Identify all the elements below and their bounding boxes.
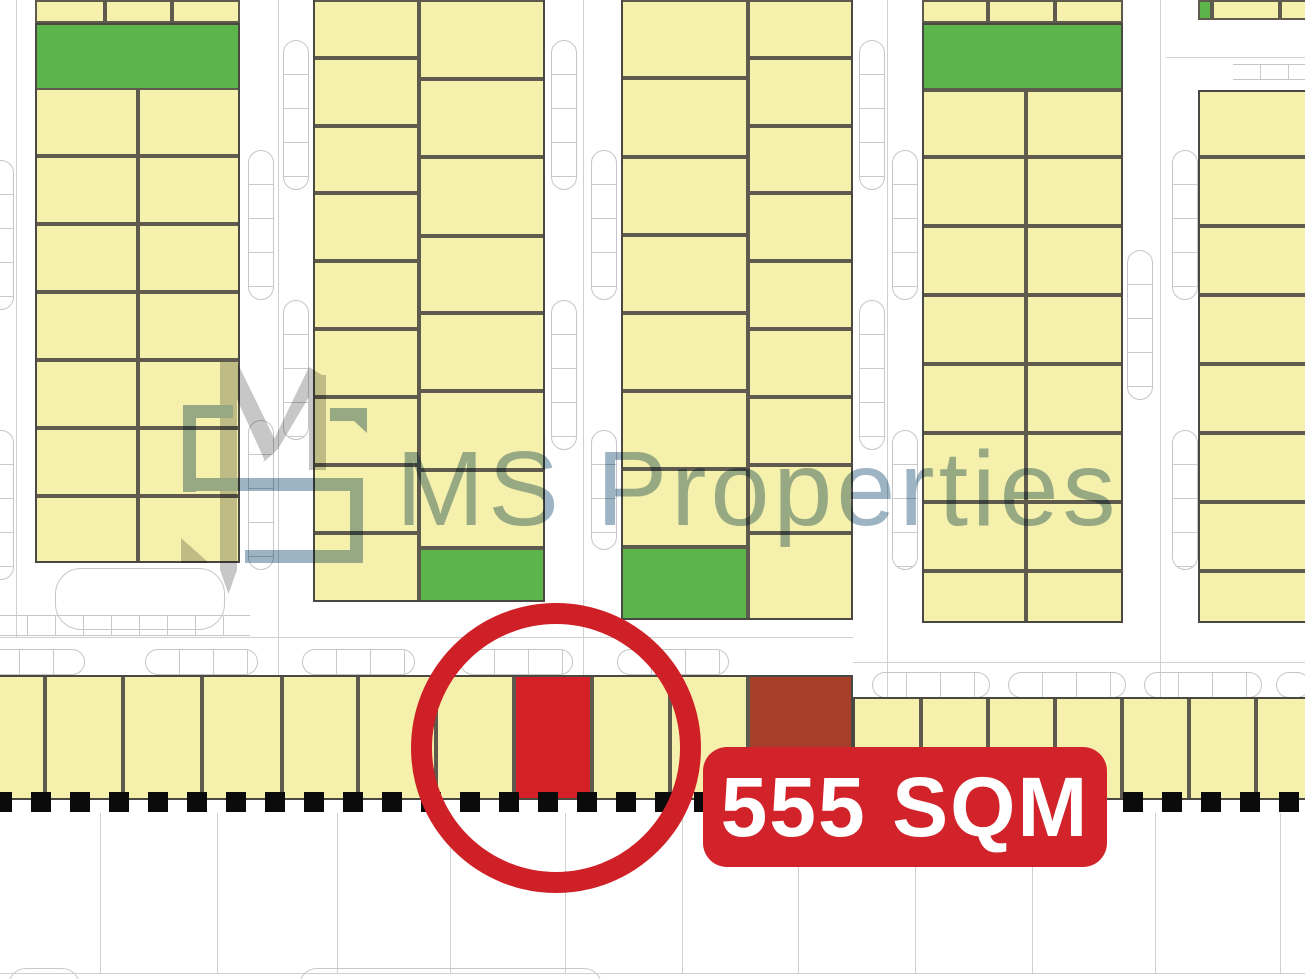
parking-bay	[551, 300, 577, 450]
road-loop	[55, 568, 225, 630]
area-badge[interactable]: 555 SQM	[703, 747, 1107, 867]
parking-bay	[1276, 672, 1305, 698]
parking-bay	[859, 40, 885, 190]
street-line	[16, 0, 17, 637]
block-outline	[621, 0, 853, 620]
parcel	[922, 0, 988, 23]
parking-bay	[892, 430, 918, 570]
parking-bay	[1172, 430, 1198, 570]
parking-bay	[283, 300, 309, 440]
parcel-green	[1198, 0, 1212, 20]
parking-bay	[248, 420, 274, 570]
lower-parcel-line	[682, 813, 683, 973]
parcel	[172, 0, 240, 23]
parking-bay	[872, 672, 990, 698]
highlight-circle[interactable]	[411, 603, 701, 893]
parking-bay	[248, 150, 274, 300]
lower-road-outline	[299, 968, 602, 979]
parking-bay	[283, 40, 309, 190]
parking-bay	[1008, 672, 1126, 698]
area-badge-label: 555 SQM	[721, 759, 1090, 856]
lower-parcel-line	[1155, 813, 1156, 973]
lower-parcel-line	[100, 813, 101, 973]
lower-parcel-line	[217, 813, 218, 973]
parcel	[105, 0, 172, 23]
parking-bay	[0, 430, 14, 580]
lower-road-outline	[8, 968, 80, 979]
parcel	[1055, 0, 1123, 23]
street-line	[1160, 0, 1161, 697]
street-line	[583, 0, 584, 675]
parking-bay	[302, 649, 415, 675]
street-line	[853, 662, 1305, 663]
lower-parcel-line	[1280, 813, 1281, 973]
street-line	[1166, 57, 1305, 58]
block-outline	[1198, 90, 1305, 623]
parcel	[988, 0, 1055, 23]
parking-bay	[892, 150, 918, 300]
street-line	[887, 0, 888, 697]
parking-bay	[591, 150, 617, 300]
block-outline	[922, 23, 1123, 623]
block-outline	[313, 0, 545, 602]
parking-bay	[859, 300, 885, 450]
parking-bay	[591, 430, 617, 550]
parking-bay	[145, 649, 258, 675]
parcel	[1280, 0, 1305, 20]
parking-bay	[1144, 672, 1262, 698]
parking-bay	[1172, 150, 1198, 300]
parking-strip	[1233, 64, 1305, 80]
block-outline	[35, 23, 240, 563]
plot-map: MS Properties 555 SQM	[0, 0, 1305, 979]
street-line	[0, 637, 853, 638]
parking-bay	[551, 40, 577, 190]
parking-bay	[0, 160, 14, 310]
parking-bay	[1127, 250, 1153, 400]
street-line	[278, 0, 279, 675]
parcel	[1212, 0, 1280, 20]
parcel	[35, 0, 105, 23]
parking-bay	[0, 649, 85, 675]
lower-street-line	[0, 973, 1305, 974]
lower-parcel-line	[337, 813, 338, 973]
